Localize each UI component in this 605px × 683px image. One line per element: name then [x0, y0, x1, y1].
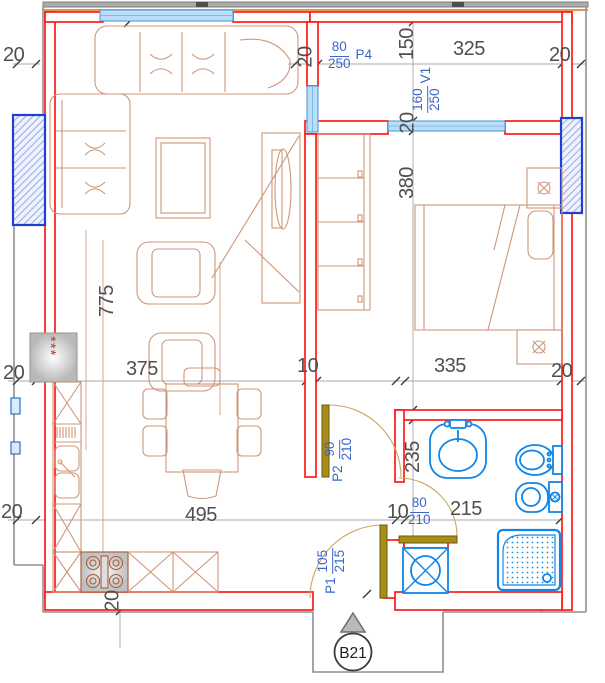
- nightstand: [527, 168, 562, 208]
- label-window-v1: 160 250 V1: [411, 67, 443, 113]
- armchair: [149, 333, 215, 391]
- cabinet-x: [53, 382, 81, 424]
- label-door-p1: P1 105 215: [316, 548, 348, 594]
- dim-wall-thickness: 20: [295, 46, 317, 67]
- label-bathroom-door: 80 210: [406, 496, 433, 528]
- furniture-bedroom: [318, 134, 562, 364]
- dim-living-height: 775: [96, 285, 118, 317]
- cooktop: [81, 552, 128, 592]
- fraction: 90 210: [323, 436, 355, 463]
- cabinet-x: [173, 552, 218, 592]
- floor-plan: B21 20 20 20 20 20 20 20 20 10 10 775 37…: [0, 0, 605, 683]
- utility-meters: [11, 398, 20, 454]
- dim-balcony-depth: 150: [396, 28, 418, 60]
- coffee-table: [156, 138, 210, 218]
- dining-set: [143, 368, 261, 499]
- dim-wall-thickness: 20: [3, 362, 24, 384]
- toilet: [516, 482, 562, 512]
- door-p1-leaf: [380, 525, 387, 598]
- dim-wall-thickness: 20: [1, 501, 22, 523]
- washbasin: [430, 420, 486, 478]
- nightstand: [517, 330, 562, 364]
- opening-name: P4: [356, 48, 373, 63]
- wall-bedroom-top-right: [505, 121, 562, 134]
- wardrobe: [318, 134, 370, 310]
- unit-stamp-label: B21: [339, 645, 367, 662]
- bathroom-door-leaf: [399, 536, 457, 543]
- wall-balcony-top: [310, 12, 572, 22]
- dim-wall-thickness: 20: [551, 360, 572, 382]
- opening-name: P1: [325, 577, 340, 594]
- entrance-stamp: B21: [335, 613, 372, 671]
- wall-bottom-left: [45, 592, 313, 610]
- armchair: [137, 242, 215, 304]
- wall-top-left: [45, 12, 103, 22]
- stove-marks: ***: [42, 336, 59, 357]
- dim-bedroom-depth: 380: [396, 167, 418, 199]
- label-door-p4: 80 250 P4: [326, 40, 372, 72]
- wall-interior: [305, 134, 316, 477]
- pillow: [528, 211, 553, 259]
- windows: [100, 10, 505, 132]
- kitchen-counter-left: [53, 382, 81, 552]
- fraction: 160 250: [411, 86, 443, 113]
- dim-balcony-width: 325: [453, 38, 485, 60]
- plan-drawing: B21: [0, 0, 605, 683]
- column-left: [13, 115, 45, 225]
- shower-tray: [498, 530, 560, 590]
- dim-bathroom-width: 215: [450, 498, 482, 520]
- north-entry-triangle-icon: [341, 613, 365, 632]
- dim-bedroom-width: 335: [434, 355, 466, 377]
- cabinet-x: [53, 504, 81, 552]
- bed: [415, 205, 562, 330]
- column-right: [561, 118, 582, 213]
- dim-wall-thickness: 20: [549, 44, 570, 66]
- kitchen-sink: [55, 446, 79, 498]
- opening-name: P2: [332, 465, 347, 482]
- wall-bedroom-bathroom: [395, 410, 562, 420]
- bidet: [516, 445, 562, 475]
- dim-bathroom-depth: 235: [402, 441, 424, 473]
- fraction: 80 210: [406, 496, 433, 528]
- wall-bottom-right: [395, 592, 562, 610]
- furniture-living-room: [30, 26, 300, 499]
- fraction: 105 215: [316, 548, 348, 575]
- dim-wall-thickness: 20: [3, 44, 24, 66]
- washing-machine: [403, 548, 448, 593]
- fraction: 80 250: [326, 40, 353, 72]
- entrance-porch-outline: [313, 612, 443, 672]
- cabinet-x: [128, 552, 173, 592]
- dim-wall-thickness: 20: [397, 112, 419, 133]
- dim-living-width-lower: 495: [185, 504, 217, 526]
- opening-name: V1: [420, 67, 435, 84]
- dim-living-width-upper: 375: [126, 358, 158, 380]
- dim-wall-thickness: 20: [102, 590, 124, 611]
- tv-unit: [212, 133, 300, 303]
- cabinet-x: [53, 552, 81, 592]
- corner-sofa: [50, 26, 298, 214]
- dish-drainer: [57, 427, 75, 438]
- furniture-kitchen: [53, 382, 218, 592]
- dim-partition-thickness: 10: [297, 355, 318, 377]
- wall-right: [562, 12, 572, 610]
- label-door-p2: P2 90 210: [323, 436, 355, 482]
